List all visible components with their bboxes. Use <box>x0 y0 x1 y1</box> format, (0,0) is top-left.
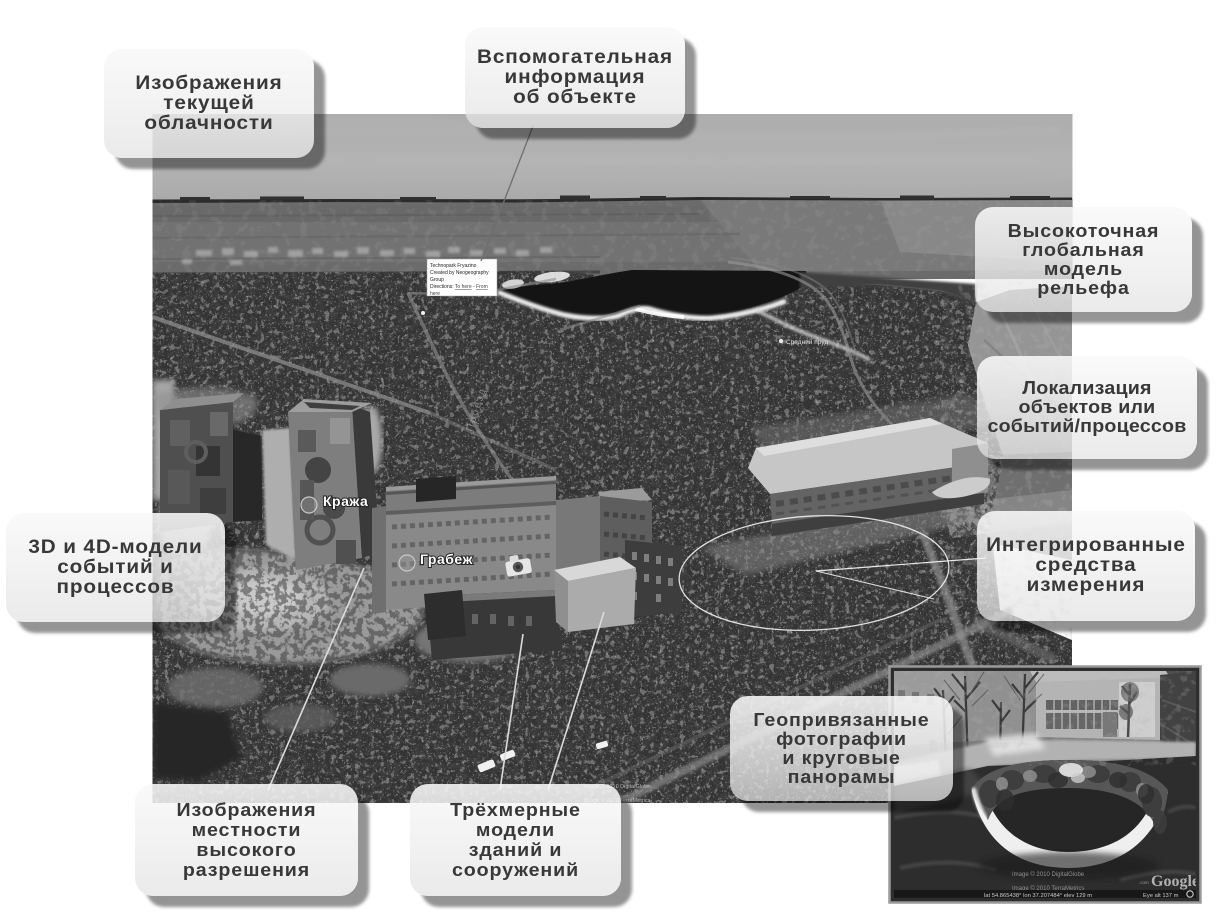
svg-text:Image © 2010 DigitalGlobe: Image © 2010 DigitalGlobe <box>1012 871 1085 878</box>
svg-text:Group: Group <box>430 277 444 283</box>
svg-text:Directions: To here - From: Directions: To here - From <box>430 284 488 290</box>
svg-text:Technopark Fryazino: Technopark Fryazino <box>430 263 477 269</box>
svg-text:Google: Google <box>1151 873 1199 890</box>
svg-text:Кража: Кража <box>323 493 368 509</box>
svg-text:Created by Neogeography: Created by Neogeography <box>430 270 489 276</box>
svg-text:Грабеж: Грабеж <box>420 551 473 567</box>
svg-text:.com: .com <box>1139 880 1149 885</box>
svg-text:here: here <box>430 291 440 297</box>
svg-text:Средний пруд: Средний пруд <box>786 338 828 346</box>
